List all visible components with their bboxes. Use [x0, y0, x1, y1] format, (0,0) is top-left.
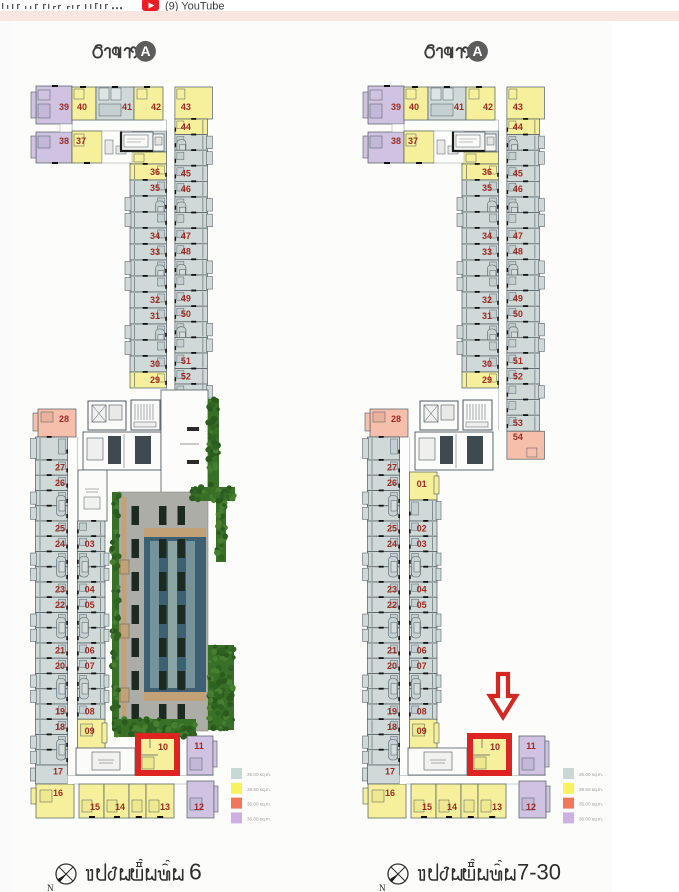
svg-text:05: 05	[85, 600, 95, 610]
svg-text:31: 31	[482, 311, 492, 321]
svg-text:(9) YouTube: (9) YouTube	[165, 1, 225, 13]
svg-text:21: 21	[387, 646, 397, 656]
svg-text:35: 35	[150, 183, 160, 193]
svg-text:34: 34	[482, 231, 492, 241]
svg-text:54: 54	[513, 432, 523, 442]
svg-text:35.00 sq.m.: 35.00 sq.m.	[247, 802, 271, 807]
svg-text:27: 27	[387, 463, 397, 473]
svg-text:20: 20	[387, 661, 397, 671]
svg-text:26.00 sq.m.: 26.00 sq.m.	[579, 772, 603, 777]
svg-text:32: 32	[150, 295, 160, 305]
svg-text:7-30: 7-30	[517, 860, 561, 885]
svg-text:23: 23	[55, 585, 65, 595]
svg-text:08: 08	[417, 707, 427, 717]
svg-text:08: 08	[85, 707, 95, 717]
svg-text:12: 12	[194, 802, 204, 812]
svg-text:48: 48	[181, 247, 191, 257]
svg-text:37: 37	[76, 136, 86, 146]
svg-text:45: 45	[181, 169, 191, 179]
svg-text:21: 21	[55, 646, 65, 656]
svg-text:A: A	[472, 43, 482, 59]
svg-text:38: 38	[391, 136, 401, 146]
svg-text:12: 12	[526, 802, 536, 812]
svg-text:27: 27	[55, 463, 65, 473]
svg-text:28: 28	[59, 414, 69, 424]
svg-text:6: 6	[189, 859, 202, 885]
svg-text:46: 46	[181, 184, 191, 194]
svg-text:03: 03	[417, 539, 427, 549]
svg-text:51: 51	[181, 356, 191, 366]
svg-text:04: 04	[417, 585, 427, 595]
svg-text:26: 26	[387, 478, 397, 488]
svg-text:15: 15	[90, 802, 100, 812]
svg-text:36.00 sq.m.: 36.00 sq.m.	[579, 816, 603, 821]
svg-text:33: 33	[150, 247, 160, 257]
svg-text:18: 18	[387, 722, 397, 732]
svg-text:49: 49	[513, 293, 523, 303]
svg-text:34: 34	[150, 231, 160, 241]
svg-text:40: 40	[77, 102, 87, 112]
svg-text:50: 50	[513, 309, 523, 319]
svg-text:29: 29	[150, 375, 160, 385]
svg-text:20: 20	[55, 661, 65, 671]
svg-text:33: 33	[482, 247, 492, 257]
svg-text:30: 30	[150, 359, 160, 369]
svg-text:44: 44	[513, 122, 523, 132]
svg-text:19: 19	[387, 707, 397, 717]
svg-text:10: 10	[158, 742, 168, 752]
svg-text:14: 14	[115, 802, 125, 812]
svg-text:40: 40	[409, 102, 419, 112]
svg-text:47: 47	[181, 231, 191, 241]
svg-text:41: 41	[122, 102, 132, 112]
svg-text:13: 13	[492, 802, 502, 812]
svg-text:28.50 sq.m.: 28.50 sq.m.	[247, 787, 271, 792]
svg-text:07: 07	[85, 661, 95, 671]
svg-text:05: 05	[417, 600, 427, 610]
svg-text:35: 35	[482, 183, 492, 193]
svg-text:09: 09	[85, 726, 95, 736]
svg-text:24: 24	[55, 539, 65, 549]
svg-text:32: 32	[482, 295, 492, 305]
svg-text:45: 45	[513, 169, 523, 179]
svg-text:52: 52	[181, 371, 191, 381]
svg-text:36.00 sq.m.: 36.00 sq.m.	[247, 816, 271, 821]
svg-text:47: 47	[513, 231, 523, 241]
svg-text:22: 22	[55, 600, 65, 610]
svg-text:09: 09	[417, 726, 427, 736]
svg-text:10: 10	[490, 742, 500, 752]
svg-text:30: 30	[482, 359, 492, 369]
svg-text:24: 24	[387, 539, 397, 549]
svg-text:26.00 sq.m.: 26.00 sq.m.	[247, 772, 271, 777]
svg-text:06: 06	[85, 646, 95, 656]
svg-text:18: 18	[55, 722, 65, 732]
svg-text:28: 28	[391, 414, 401, 424]
svg-text:50: 50	[181, 309, 191, 319]
svg-text:29: 29	[482, 375, 492, 385]
svg-text:38: 38	[59, 136, 69, 146]
svg-text:11: 11	[194, 741, 204, 751]
svg-text:17: 17	[53, 767, 63, 777]
svg-text:36: 36	[482, 167, 492, 177]
svg-text:25: 25	[55, 524, 65, 534]
svg-text:42: 42	[151, 102, 161, 112]
svg-text:26: 26	[55, 478, 65, 488]
svg-text:25: 25	[387, 524, 397, 534]
svg-text:44: 44	[181, 122, 191, 132]
svg-text:N: N	[379, 883, 386, 892]
svg-text:11: 11	[526, 741, 536, 751]
svg-text:01: 01	[417, 479, 427, 489]
svg-text:23: 23	[387, 585, 397, 595]
svg-text:51: 51	[513, 356, 523, 366]
svg-text:19: 19	[55, 707, 65, 717]
svg-text:22: 22	[387, 600, 397, 610]
svg-text:17: 17	[385, 767, 395, 777]
svg-text:02: 02	[417, 524, 427, 534]
svg-text:N: N	[47, 883, 54, 892]
svg-text:53: 53	[513, 418, 523, 428]
svg-text:04: 04	[85, 585, 95, 595]
svg-text:07: 07	[417, 661, 427, 671]
svg-text:16: 16	[385, 788, 395, 798]
svg-text:39: 39	[59, 102, 69, 112]
svg-text:15: 15	[422, 802, 432, 812]
svg-text:36: 36	[150, 167, 160, 177]
svg-text:31: 31	[150, 311, 160, 321]
svg-text:42: 42	[483, 102, 493, 112]
svg-text:48: 48	[513, 247, 523, 257]
svg-text:41: 41	[454, 102, 464, 112]
svg-text:16: 16	[53, 788, 63, 798]
svg-text:13: 13	[160, 802, 170, 812]
svg-text:39: 39	[391, 102, 401, 112]
svg-text:35.00 sq.m.: 35.00 sq.m.	[579, 802, 603, 807]
svg-text:52: 52	[513, 371, 523, 381]
svg-text:46: 46	[513, 184, 523, 194]
svg-text:37: 37	[408, 136, 418, 146]
svg-text:43: 43	[513, 102, 523, 112]
svg-text:03: 03	[85, 539, 95, 549]
svg-text:A: A	[140, 43, 150, 59]
svg-text:06: 06	[417, 646, 427, 656]
svg-text:14: 14	[447, 802, 457, 812]
svg-text:28.50 sq.m.: 28.50 sq.m.	[579, 787, 603, 792]
svg-text:43: 43	[181, 102, 191, 112]
svg-text:49: 49	[181, 293, 191, 303]
